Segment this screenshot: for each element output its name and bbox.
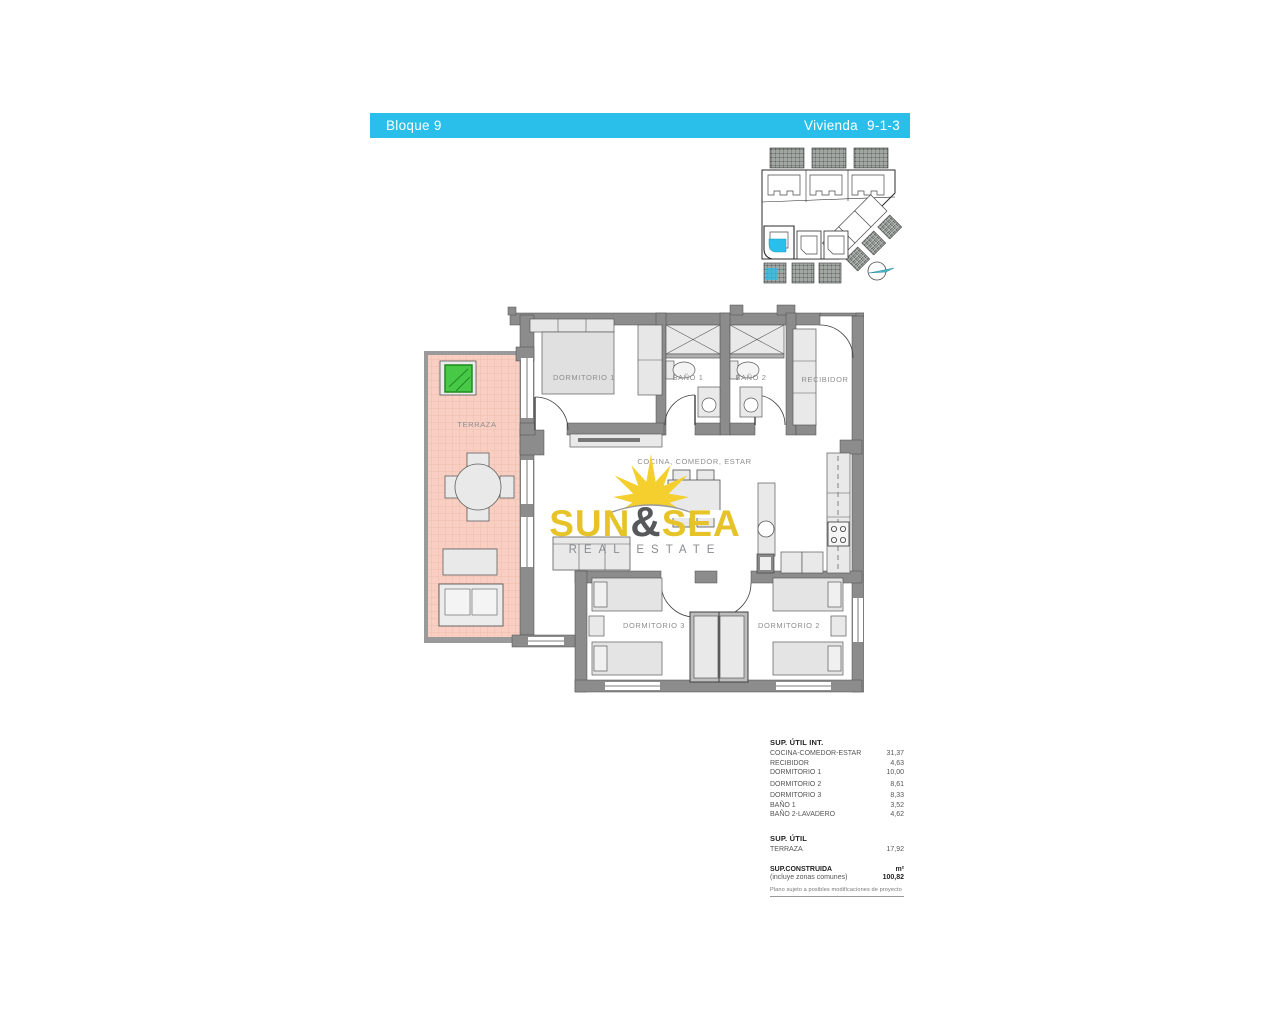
terrace-side-table <box>443 549 497 575</box>
site-highlighted-unit <box>769 239 786 252</box>
plant-icon <box>440 361 476 395</box>
label-terraza: TERRAZA <box>452 420 502 429</box>
desk <box>570 434 662 447</box>
site-terrace-pergolas <box>770 148 888 168</box>
area-row: BAÑO 1 3,52 <box>770 801 904 811</box>
washing-machine <box>757 554 774 573</box>
area-row: COCINA-COMEDOR-ESTAR 31,37 <box>770 749 904 759</box>
construida-subtitle: (incluye zonas comunes) <box>770 873 847 883</box>
construida-block: SUP.CONSTRUIDA m² (incluye zonas comunes… <box>770 866 904 883</box>
block-title: Bloque 9 <box>386 118 442 133</box>
area-row: TERRAZA 17,92 <box>770 845 904 855</box>
label-dormitorio1: DORMITORIO 1 <box>539 373 629 382</box>
area-row: BAÑO 2-LAVADERO 4,62 <box>770 810 904 820</box>
disclaimer-note: Plano sujeto a posibles modificaciones d… <box>770 887 904 897</box>
header-bar: Bloque 9 Vivienda 9-1-3 <box>370 113 910 138</box>
terrace-sofa <box>439 584 503 626</box>
bed-dorm1 <box>530 319 662 395</box>
dwelling-number: 9-1-3 <box>867 118 900 133</box>
label-cocina: COCINA, COMEDOR, ESTAR <box>632 457 757 466</box>
living-sofa <box>553 537 630 570</box>
compass-icon <box>868 262 894 280</box>
area-row: DORMITORIO 2 8,61 <box>770 780 904 790</box>
plan-sheet: Bloque 9 Vivienda 9-1-3 <box>0 0 1280 1024</box>
label-dormitorio2: DORMITORIO 2 <box>744 621 834 630</box>
area-row: RECIBIDOR 4,63 <box>770 759 904 769</box>
areas-table: SUP. ÚTIL INT. COCINA-COMEDOR-ESTAR 31,3… <box>770 738 904 897</box>
util-title: SUP. ÚTIL <box>770 834 904 843</box>
label-recibidor: RECIBIDOR <box>789 375 861 384</box>
dwelling-label: Vivienda <box>804 118 858 133</box>
area-row: DORMITORIO 1 10,00 <box>770 768 904 778</box>
construida-unit: m² <box>895 866 904 873</box>
construida-value: 100,82 <box>883 873 904 883</box>
floor-plan: TERRAZA DORMITORIO 1 BAÑO 1 BAÑO 2 RECIB… <box>424 303 864 695</box>
util-int-title: SUP. ÚTIL INT. <box>770 738 904 747</box>
label-dormitorio3: DORMITORIO 3 <box>609 621 699 630</box>
site-top-units <box>768 175 884 195</box>
site-bottom-pergolas <box>764 263 841 283</box>
dwelling-title: Vivienda 9-1-3 <box>804 118 900 133</box>
construida-title: SUP.CONSTRUIDA <box>770 866 832 873</box>
stove <box>828 522 849 546</box>
area-row: DORMITORIO 3 8,33 <box>770 791 904 801</box>
site-plan <box>748 142 916 292</box>
label-bano1: BAÑO 1 <box>664 373 712 382</box>
dining-table <box>668 470 720 527</box>
label-bano2: BAÑO 2 <box>727 373 775 382</box>
